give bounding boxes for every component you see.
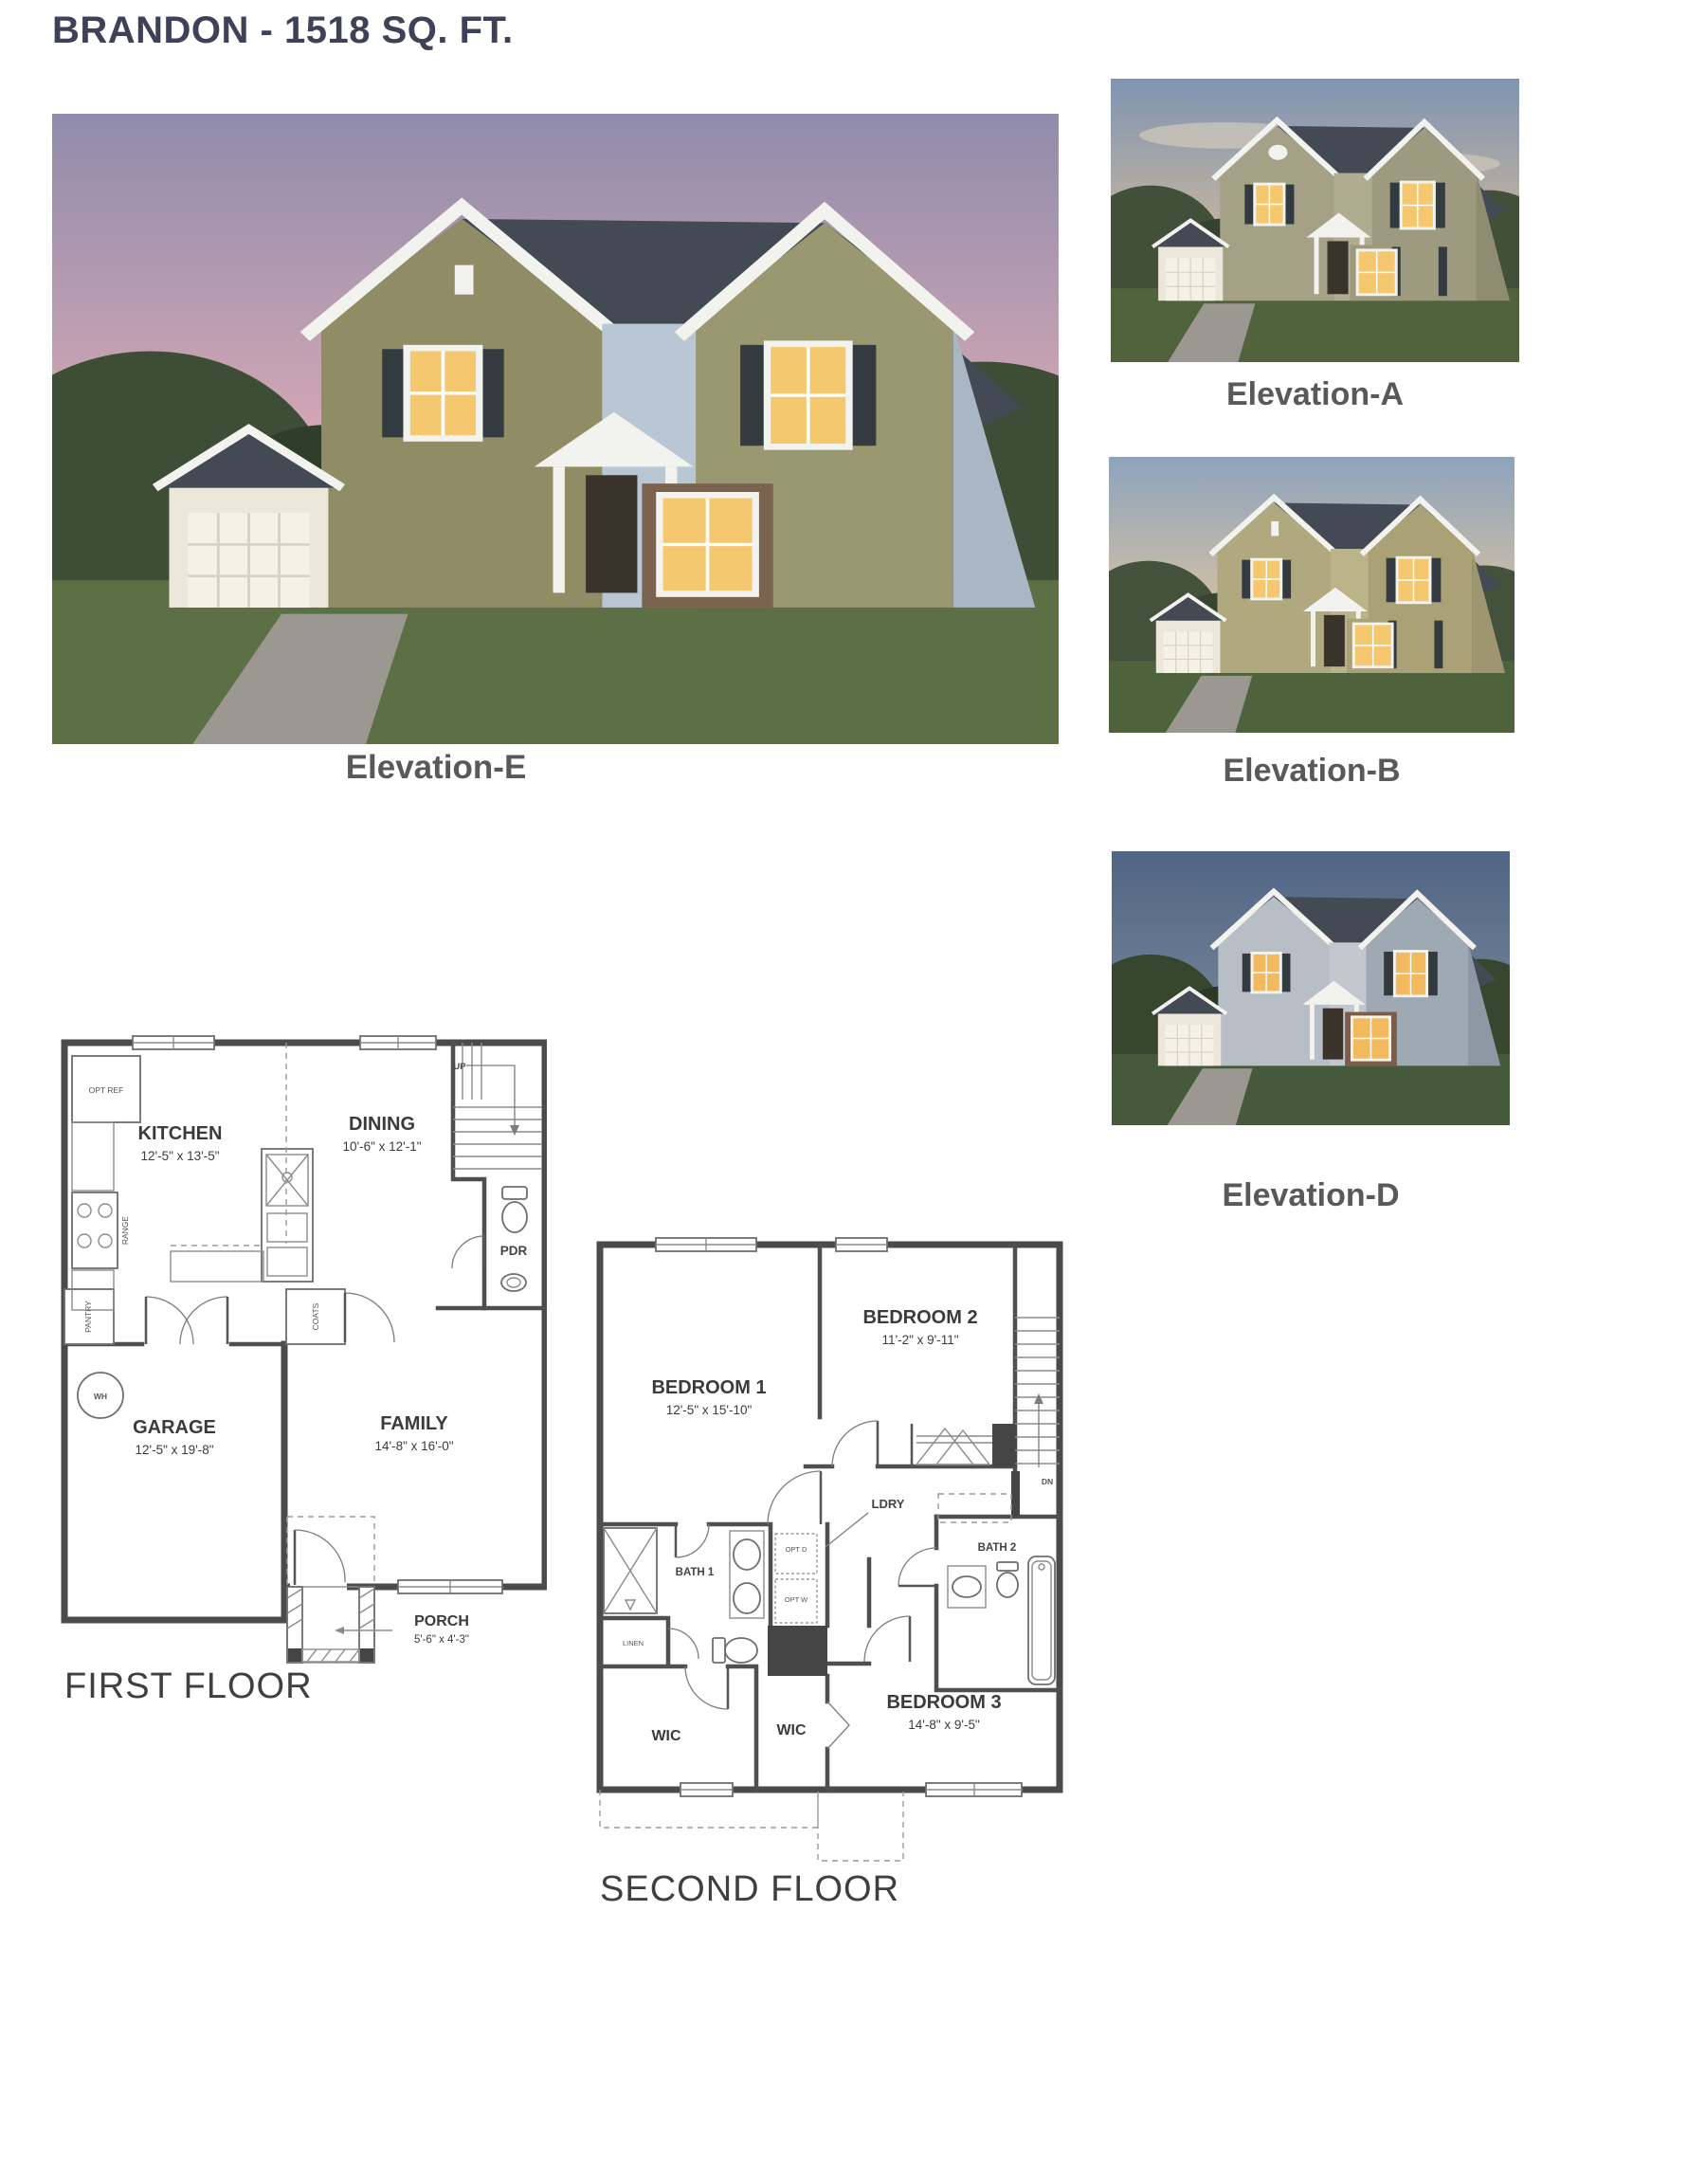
opt-washer-label: OPT W [785,1595,808,1604]
second-floor-title: SECOND FLOOR [600,1869,899,1910]
room-label-bedroom2: BEDROOM 2 [862,1307,977,1328]
upper-right-window [740,340,876,449]
front-door [586,475,637,592]
room-dims-bedroom1: 12'-5" x 15'-10" [666,1403,753,1417]
second-floor-plan: DN [595,1232,1097,1867]
bath2-door [898,1548,936,1586]
counter [171,1251,263,1282]
range [72,1192,118,1268]
roof-outline-dashed [818,1792,903,1861]
window [656,1238,756,1251]
sink-peninsula [262,1149,313,1282]
staircase-up [453,1043,542,1169]
upper-left-window [1244,183,1294,227]
range-label: RANGE [120,1216,130,1246]
room-label-garage: GARAGE [133,1417,216,1438]
stair-walls [936,1245,1060,1517]
window [680,1783,733,1796]
room-label-bath2: BATH 2 [978,1542,1017,1554]
linen-door [668,1629,698,1659]
elevation-e-photo [52,114,1059,744]
window [836,1238,887,1251]
window [360,1036,436,1049]
bath1-door [676,1524,709,1557]
lower-right-window [1351,1015,1391,1061]
upper-right-window [1390,181,1445,230]
room-label-wic-mid: WIC [776,1722,807,1738]
room-label-family: FAMILY [380,1413,448,1434]
wall-block [992,1424,1017,1466]
upper-right-window [1387,556,1442,604]
front-door [1324,615,1345,666]
first-floor-title: FIRST FLOOR [64,1666,313,1707]
elevation-a-photo [1111,79,1519,362]
elevation-d-photo [1112,851,1510,1125]
wh-label: WH [94,1392,107,1401]
window [133,1036,214,1049]
room-label-dining: DINING [349,1114,415,1135]
up-label: UP [453,1062,466,1072]
room-dims-family: 14'-8" x 16'-0" [374,1439,453,1453]
foyer-outline [287,1517,374,1587]
upper-left-window [1243,952,1291,993]
room-label-ldry: LDRY [872,1497,905,1511]
counter [72,1122,114,1191]
opt-dryer-label: OPT D [786,1545,807,1554]
opt-ref-label: OPT REF [89,1085,124,1095]
caption-elevation-a: Elevation-A [1111,376,1519,413]
wall-block [1011,1471,1020,1517]
room-label-pdr: PDR [500,1244,528,1258]
caption-elevation-d: Elevation-D [1112,1177,1510,1214]
coats-door [345,1293,394,1342]
front-door [1328,241,1349,294]
room-dims-dining: 10'-6" x 12'-1" [342,1139,421,1154]
lower-right-window [656,492,759,597]
room-label-bath1: BATH 1 [676,1567,715,1578]
staircase-down [1015,1318,1060,1467]
powder-room-fixtures [452,1187,527,1291]
room-dims-bedroom2: 11'-2" x 9'-11" [881,1333,958,1347]
dn-label: DN [1042,1477,1053,1486]
bath2-fixtures [948,1556,1055,1684]
first-floor-plan: UP PDR PANTRY COATS WH OPT REF [59,1016,547,1680]
room-label-bedroom3: BEDROOM 3 [886,1692,1001,1713]
upper-left-window [382,345,503,442]
spec-sheet-page: BRANDON - 1518 SQ. FT. [0,0,1687,2184]
room-label-porch: PORCH [414,1613,469,1629]
room-dims-kitchen: 12'-5" x 13'-5" [140,1149,219,1163]
room-dims-garage: 12'-5" x 19'-8" [135,1443,213,1457]
room-dims-bedroom3: 14'-8" x 9'-5" [908,1718,980,1732]
caption-elevation-e: Elevation-E [52,749,820,787]
room-label-wic-left: WIC [651,1728,681,1744]
page-title: BRANDON - 1518 SQ. FT. [52,9,514,52]
room-label-linen: LINEN [623,1639,644,1647]
hall-walls [827,1559,869,1790]
upper-left-window [1242,558,1291,601]
br1-door [768,1471,821,1524]
window [398,1580,502,1593]
wic-left-door [685,1666,728,1709]
coats-label: COATS [311,1302,320,1330]
wall-block [768,1626,827,1676]
wic-mid-bifold-door [827,1702,849,1749]
front-door [290,1530,347,1594]
stair-pdr-walls [453,1043,484,1308]
elevation-b-photo [1109,457,1515,733]
br2-closet [912,1424,992,1466]
ldry-leader [825,1513,868,1547]
window [926,1783,1022,1796]
caption-elevation-b: Elevation-B [1109,753,1515,790]
porch-structure [287,1587,374,1663]
br2-door [832,1421,878,1466]
room-label-kitchen: KITCHEN [138,1123,223,1144]
room-label-bedroom1: BEDROOM 1 [651,1377,766,1398]
hall-doors [146,1297,227,1344]
room-dims-porch: 5'-6" x 4'-3" [414,1634,469,1646]
front-door [1323,1009,1343,1060]
pantry-label: PANTRY [83,1301,93,1333]
upper-right-window [1384,950,1438,997]
